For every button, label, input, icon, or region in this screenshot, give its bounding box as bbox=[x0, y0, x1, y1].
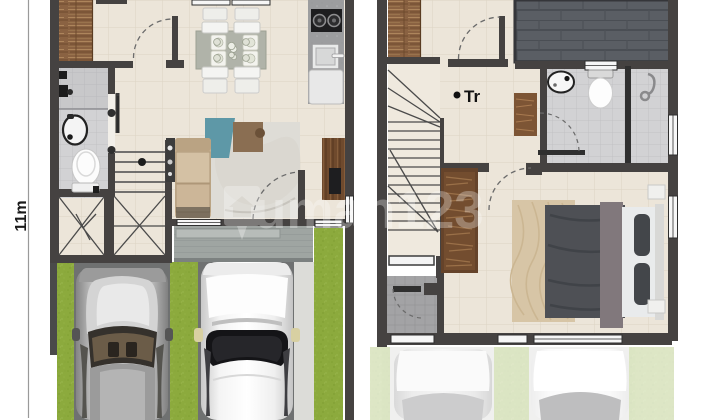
svg-text:11m: 11m bbox=[13, 200, 30, 231]
svg-text:Tr: Tr bbox=[464, 87, 480, 106]
svg-text:umah123: umah123 bbox=[254, 181, 484, 240]
